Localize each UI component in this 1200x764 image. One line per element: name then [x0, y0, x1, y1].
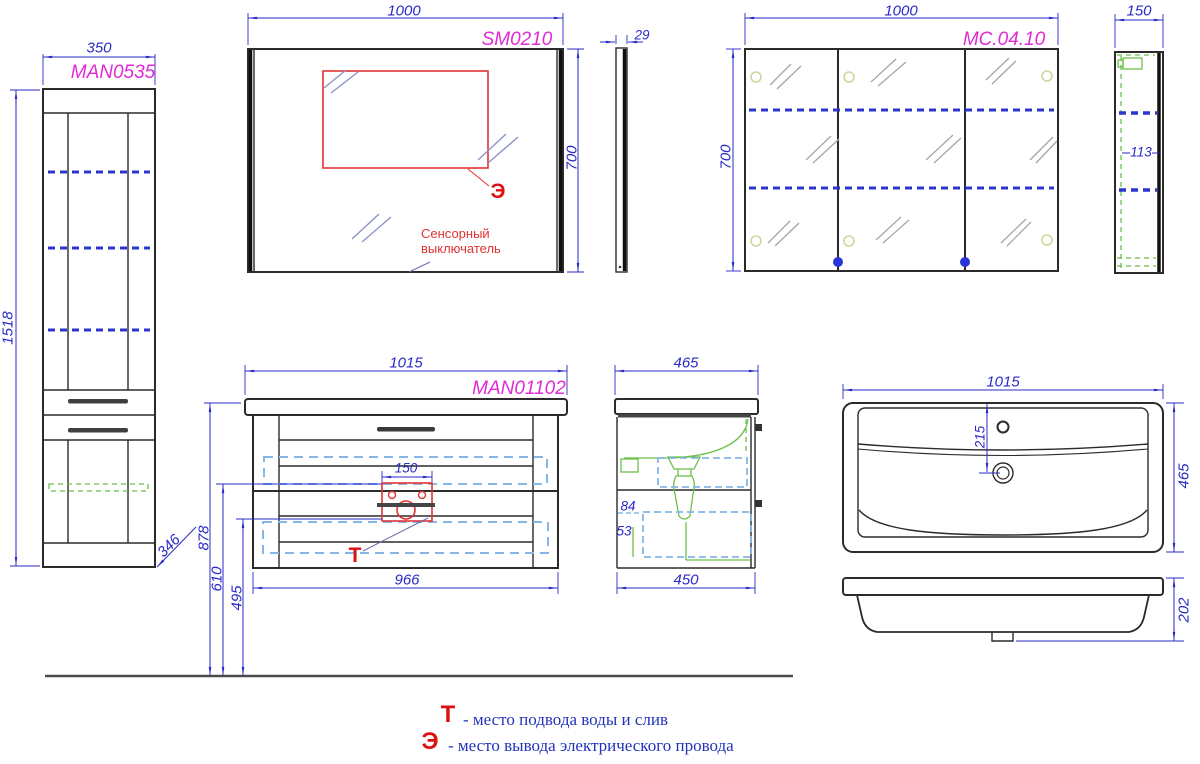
supply-hole	[389, 492, 396, 499]
door-knob	[833, 257, 843, 267]
touch-switch-note-line2: выключатель	[421, 241, 501, 256]
glass-hatch	[362, 217, 391, 242]
sink-outer-rim	[843, 403, 1163, 552]
glass-hatch	[770, 64, 791, 85]
dim-height-vanity: 878	[196, 525, 213, 550]
hinge-circle	[1042, 71, 1052, 81]
electric-symbol-mirror: Э	[491, 180, 506, 204]
dim-width-vanity: 1015	[389, 355, 422, 372]
hinge-circle	[751, 72, 761, 82]
dim-thickness-mirror: 29	[634, 28, 649, 43]
wall-bracket	[621, 459, 638, 472]
legend-water-symbol: Т	[441, 701, 456, 729]
dim-a-vanity-side: 84	[620, 499, 635, 514]
glass-hatch	[331, 72, 358, 93]
sink-inner-rim	[858, 408, 1148, 537]
tall-cabinet-front-view	[10, 54, 196, 567]
drawer-handle-side	[755, 424, 762, 431]
glass-hatch	[478, 134, 506, 160]
dim-drain-bottom-vanity: 495	[229, 585, 246, 610]
basin-bottom-edge	[859, 510, 1147, 535]
sink-top-view	[843, 384, 1184, 552]
sink-body-front	[857, 595, 1149, 632]
glass-hatch	[934, 138, 961, 163]
drawer-handle	[377, 427, 435, 432]
switch-leader-line	[409, 262, 430, 272]
drawer-handle	[68, 428, 128, 433]
legend-water-text: - место подвода воды и слив	[463, 710, 668, 730]
hinge-circle	[844, 236, 854, 246]
glass-hatch	[986, 58, 1009, 80]
model-label-mirror-cabinet: МС.04.10	[963, 29, 1045, 51]
touch-switch-note: Сенсорный выключатель	[421, 226, 501, 256]
vanity-front-view	[204, 365, 567, 676]
model-label-mirror: SM0210	[482, 29, 553, 51]
model-label-vanity: MAN01102	[472, 378, 566, 400]
glass-hatch	[775, 223, 799, 246]
cabinet-outline	[745, 49, 1058, 271]
dim-height-sink: 202	[1176, 597, 1193, 622]
glass-hatch	[992, 61, 1016, 84]
basin-front-edge	[858, 444, 1148, 450]
side-outline	[1115, 52, 1163, 273]
glass-hatch	[876, 217, 901, 240]
model-label-tall-cabinet: MAN0535	[71, 62, 156, 84]
legend-electric-text: - место вывода электрического провода	[448, 736, 734, 756]
technical-drawing-canvas: 350 MAN0535 1518 346 1000 SM0210 700 Э С…	[0, 0, 1200, 764]
glass-hatch	[352, 214, 379, 239]
drawing-layer	[0, 0, 1200, 764]
dim-cutout-vanity: 150	[395, 461, 418, 476]
door-knob	[960, 257, 970, 267]
glass-hatch	[926, 135, 953, 160]
dim-width-sink: 1015	[986, 374, 1019, 391]
glass-hatch	[777, 66, 801, 89]
supply-hole	[419, 492, 426, 499]
hinge-circle	[751, 236, 761, 246]
dim-drain-offset-sink: 215	[973, 426, 988, 449]
fastener-dot	[619, 266, 622, 269]
dim-depth-vanity-side: 465	[673, 355, 698, 372]
dim-height-tall-cabinet: 1518	[0, 311, 17, 344]
glass-hatch	[324, 70, 346, 88]
hinge-circle	[844, 72, 854, 82]
drawer-box-dashed	[643, 512, 751, 557]
glass-hatch	[806, 136, 831, 160]
dim-shelf-spacing: 113	[1130, 145, 1152, 160]
dim-width-tall-cabinet: 350	[86, 40, 111, 57]
mirror-front-view	[248, 13, 584, 272]
glass-hatch	[813, 139, 839, 163]
water-symbol-vanity: Т	[349, 544, 362, 568]
sink-profile	[624, 419, 748, 458]
mirror-outline	[248, 49, 563, 272]
mirror-cabinet-side-view	[1115, 14, 1163, 273]
dim-height-mirror-cabinet: 700	[718, 144, 735, 169]
hinge-plate	[1123, 58, 1142, 69]
glass-hatch	[768, 221, 790, 243]
dim-bottom-width-vanity: 966	[394, 572, 419, 589]
cabinet-outline	[43, 89, 155, 567]
mount-bar	[377, 503, 435, 507]
touch-switch-note-line1: Сенсорный	[421, 226, 490, 241]
dim-b-vanity-side: 53	[616, 524, 631, 539]
dim-depth-sink: 465	[1176, 463, 1193, 488]
towel-bar-dashed	[49, 484, 148, 491]
vanity-side-view	[615, 365, 762, 594]
drawer-handle	[68, 399, 128, 404]
dim-bottom-depth-vanity-side: 450	[673, 572, 698, 589]
legend-electric-symbol: Э	[421, 728, 438, 756]
electric-zone-rect	[323, 71, 488, 168]
drawer-handle-side	[755, 500, 762, 507]
countertop-side	[615, 399, 758, 414]
glass-hatch	[871, 59, 896, 82]
counter-underlay	[618, 414, 751, 418]
glass-hatch	[878, 62, 906, 86]
drawer-box-dashed	[263, 522, 548, 553]
glass-hatch	[883, 220, 909, 243]
glass-hatch	[488, 137, 518, 163]
faucet-hole	[998, 422, 1009, 433]
hinge-circle	[1042, 235, 1052, 245]
mirror-side-view	[600, 35, 643, 272]
drain-stub	[992, 632, 1013, 641]
dim-depth-mirror-cabinet: 150	[1126, 3, 1151, 20]
countertop	[245, 399, 567, 415]
electric-leader-line	[468, 169, 489, 186]
sink-front-view	[843, 578, 1184, 641]
dim-height-mirror: 700	[564, 145, 581, 170]
dim-width-mirror-cabinet: 1000	[884, 3, 917, 20]
mirror-cabinet-front-view	[726, 13, 1058, 271]
dim-width-mirror: 1000	[387, 3, 420, 20]
sink-rim-front	[843, 578, 1163, 595]
dim-drain-height-vanity: 610	[209, 566, 226, 591]
